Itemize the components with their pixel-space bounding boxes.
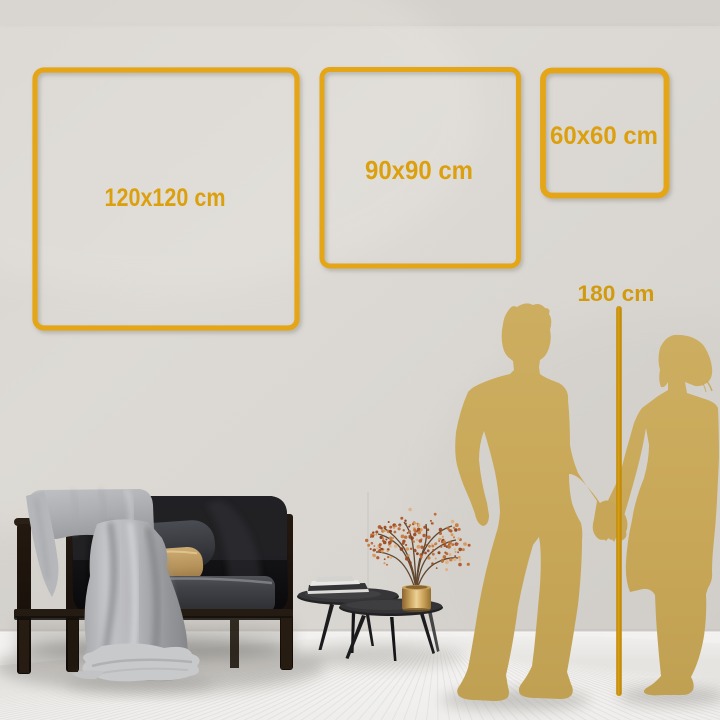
svg-text:90x90 cm: 90x90 cm <box>365 155 473 185</box>
svg-text:60x60 cm: 60x60 cm <box>550 122 658 150</box>
svg-text:120x120 cm: 120x120 cm <box>105 184 226 212</box>
svg-text:180 cm: 180 cm <box>578 281 655 306</box>
